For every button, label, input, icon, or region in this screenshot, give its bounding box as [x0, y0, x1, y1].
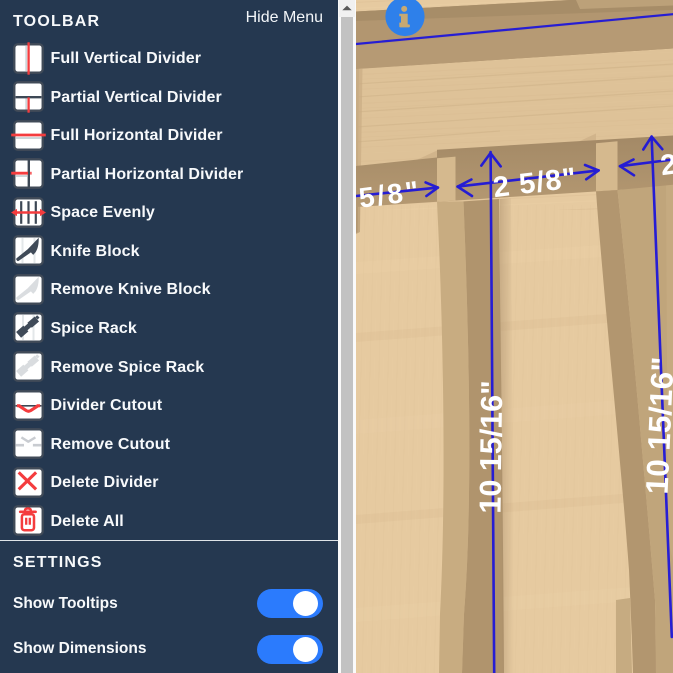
svg-text:10 15/16": 10 15/16" [473, 380, 509, 514]
svg-text:10 15/16": 10 15/16" [638, 356, 673, 495]
